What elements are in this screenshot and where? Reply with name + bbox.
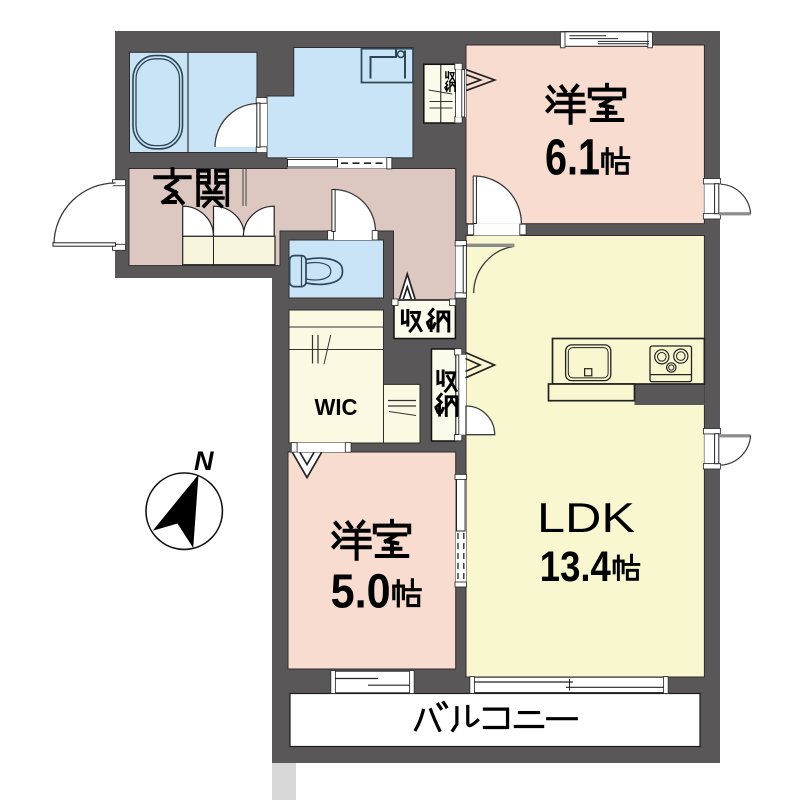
svg-text:N: N [194,446,214,476]
svg-text:6.1: 6.1 [545,129,600,186]
svg-text:13.4: 13.4 [540,543,611,591]
svg-text:WIC: WIC [315,394,358,420]
svg-text:5.0: 5.0 [331,566,391,619]
svg-text:LDK: LDK [537,494,635,541]
